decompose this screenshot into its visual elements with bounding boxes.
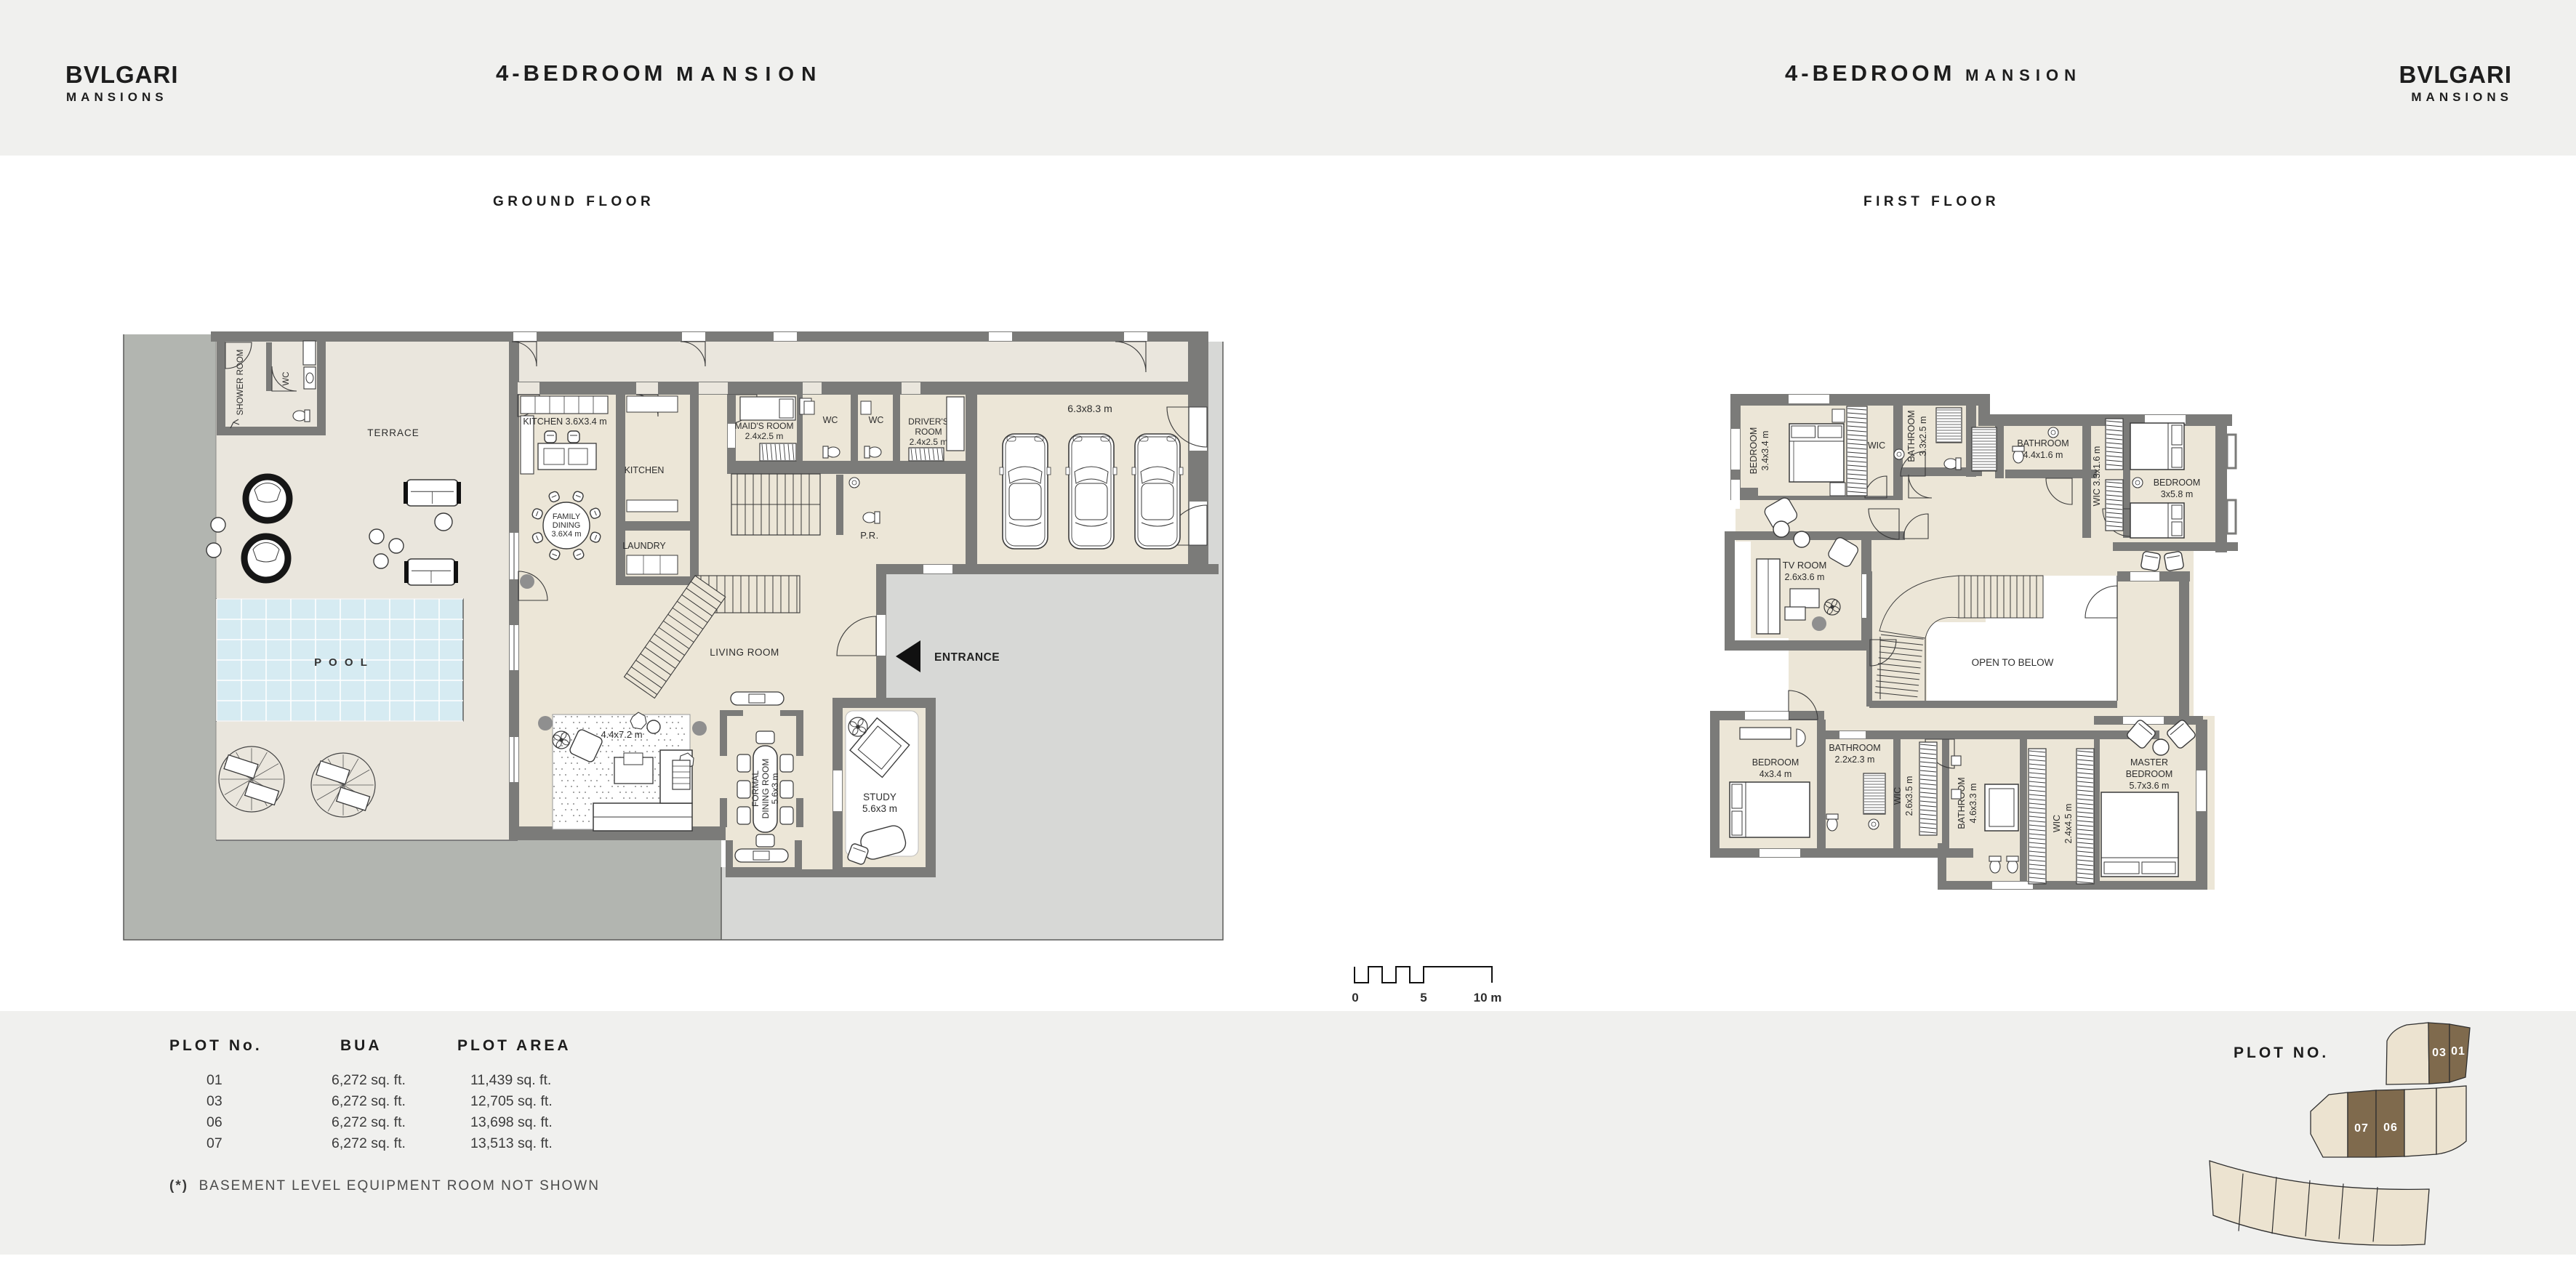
svg-text:LIVING ROOM: LIVING ROOM bbox=[710, 647, 779, 658]
svg-text:5: 5 bbox=[1420, 991, 1427, 1005]
svg-text:DRIVER'S: DRIVER'S bbox=[908, 416, 949, 427]
svg-text:03: 03 bbox=[2432, 1047, 2447, 1059]
svg-text:WC: WC bbox=[282, 371, 291, 385]
svg-text:KITCHEN: KITCHEN bbox=[625, 465, 665, 475]
svg-text:2.4x4.5 m: 2.4x4.5 m bbox=[2063, 804, 2074, 844]
svg-text:2.2x2.3 m: 2.2x2.3 m bbox=[1835, 754, 1875, 765]
svg-text:4x3.4 m: 4x3.4 m bbox=[1760, 769, 1791, 779]
svg-text:P.R.: P.R. bbox=[860, 530, 879, 541]
svg-text:FAMILY: FAMILY bbox=[553, 512, 581, 521]
svg-text:6.3x8.3 m: 6.3x8.3 m bbox=[1067, 403, 1112, 414]
svg-text:MASTER: MASTER bbox=[2130, 757, 2168, 768]
svg-text:OPEN TO BELOW: OPEN TO BELOW bbox=[1972, 657, 2054, 668]
svg-text:WIC: WIC bbox=[1893, 787, 1903, 805]
svg-text:4.6x3.3 m: 4.6x3.3 m bbox=[1968, 784, 1978, 824]
svg-text:WC: WC bbox=[869, 415, 884, 425]
svg-text:KITCHEN 3.6X3.4 m: KITCHEN 3.6X3.4 m bbox=[523, 416, 606, 427]
svg-text:LAUNDRY: LAUNDRY bbox=[622, 541, 666, 551]
svg-text:07: 07 bbox=[2354, 1122, 2369, 1135]
svg-text:ROOM: ROOM bbox=[915, 427, 942, 437]
svg-text:06: 06 bbox=[2383, 1122, 2398, 1134]
svg-text:2.4x2.5 m: 2.4x2.5 m bbox=[910, 437, 948, 447]
svg-text:BEDROOM: BEDROOM bbox=[1749, 427, 1759, 475]
svg-text:DINING ROOM: DINING ROOM bbox=[761, 759, 771, 819]
svg-text:TV ROOM: TV ROOM bbox=[1783, 560, 1827, 571]
svg-text:3.4x3.4 m: 3.4x3.4 m bbox=[1760, 431, 1770, 471]
svg-text:BEDROOM: BEDROOM bbox=[2126, 769, 2173, 779]
svg-text:SHOWER ROOM: SHOWER ROOM bbox=[236, 350, 245, 416]
svg-text:2.6x3.5 m: 2.6x3.5 m bbox=[1904, 776, 1914, 816]
svg-text:BATHROOM: BATHROOM bbox=[1906, 410, 1917, 462]
svg-text:WIC 3.3x1.6 m: WIC 3.3x1.6 m bbox=[2092, 446, 2102, 507]
svg-text:5.6x3 m: 5.6x3 m bbox=[862, 803, 897, 814]
svg-text:5.7x3.6 m: 5.7x3.6 m bbox=[2130, 781, 2170, 791]
svg-text:10 m: 10 m bbox=[1474, 991, 1502, 1005]
svg-text:TERRACE: TERRACE bbox=[367, 427, 420, 438]
svg-text:BATHROOM: BATHROOM bbox=[2017, 438, 2069, 448]
svg-text:FORMAL: FORMAL bbox=[750, 770, 761, 807]
svg-text:P O O L: P O O L bbox=[314, 656, 369, 669]
svg-text:BATHROOM: BATHROOM bbox=[1829, 743, 1880, 753]
svg-text:4.4x7.2 m: 4.4x7.2 m bbox=[601, 729, 642, 740]
svg-text:4.4x1.6 m: 4.4x1.6 m bbox=[2023, 450, 2063, 460]
svg-text:BEDROOM: BEDROOM bbox=[2154, 478, 2201, 488]
svg-text:3.3x2.5 m: 3.3x2.5 m bbox=[1918, 416, 1928, 456]
svg-text:01: 01 bbox=[2451, 1045, 2465, 1058]
svg-text:DINING: DINING bbox=[553, 521, 581, 530]
svg-text:BATHROOM: BATHROOM bbox=[1957, 777, 1967, 829]
svg-text:ENTRANCE: ENTRANCE bbox=[934, 651, 1000, 664]
svg-text:MAID'S ROOM: MAID'S ROOM bbox=[735, 421, 794, 431]
svg-text:3.6X4 m: 3.6X4 m bbox=[552, 530, 582, 539]
svg-text:BEDROOM: BEDROOM bbox=[1752, 757, 1799, 768]
svg-text:5.6x3 m: 5.6x3 m bbox=[770, 773, 780, 805]
svg-text:WC: WC bbox=[823, 415, 838, 425]
svg-text:WIC: WIC bbox=[1868, 440, 1885, 451]
svg-text:WIC: WIC bbox=[2052, 815, 2062, 832]
svg-text:0: 0 bbox=[1352, 991, 1358, 1005]
svg-text:2.4x2.5 m: 2.4x2.5 m bbox=[745, 431, 784, 441]
svg-text:3x5.8 m: 3x5.8 m bbox=[2161, 489, 2193, 499]
svg-text:2.6x3.6 m: 2.6x3.6 m bbox=[1785, 572, 1825, 582]
svg-text:STUDY: STUDY bbox=[863, 792, 896, 802]
